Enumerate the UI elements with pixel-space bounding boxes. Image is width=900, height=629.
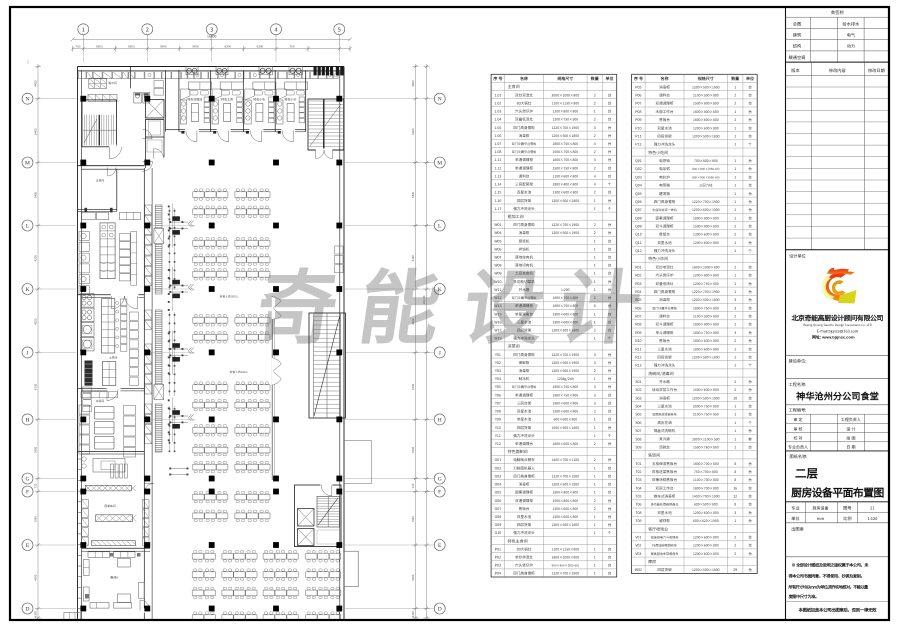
svg-text:双门冷藏平台雪柜: 双门冷藏平台雪柜 bbox=[512, 141, 537, 146]
svg-text:四层货架: 四层货架 bbox=[657, 354, 672, 360]
svg-text:W07: W07 bbox=[494, 256, 501, 261]
svg-text:1.06: 1.06 bbox=[494, 134, 501, 139]
svg-text:www.bjqnsc.com: www.bjqnsc.com bbox=[821, 335, 855, 340]
svg-text:1: 1 bbox=[594, 466, 596, 471]
svg-text:2: 2 bbox=[734, 536, 736, 541]
svg-text:台: 台 bbox=[748, 379, 752, 385]
svg-text:1: 1 bbox=[734, 519, 736, 524]
svg-text:单通调理柜: 单通调理柜 bbox=[515, 392, 533, 398]
svg-text:W05: W05 bbox=[494, 239, 501, 244]
svg-text:2: 2 bbox=[734, 388, 736, 393]
svg-text:Y08: Y08 bbox=[495, 410, 501, 415]
svg-text:台: 台 bbox=[748, 117, 752, 123]
svg-text:1: 1 bbox=[594, 247, 596, 252]
svg-text:台: 台 bbox=[748, 494, 752, 500]
svg-text:修改内容: 修改内容 bbox=[829, 68, 847, 74]
svg-text:二层: 二层 bbox=[795, 466, 818, 482]
svg-text:2100×750×950: 2100×750×950 bbox=[693, 412, 719, 417]
svg-text:台: 台 bbox=[608, 165, 612, 171]
svg-text:五格保温售饭台: 五格保温售饭台 bbox=[652, 461, 678, 467]
svg-text:1800×800×800: 1800×800×800 bbox=[693, 109, 719, 114]
svg-text:T05: T05 bbox=[635, 495, 641, 500]
svg-text:双通调理柜: 双通调理柜 bbox=[515, 498, 533, 504]
svg-text:1.11: 1.11 bbox=[494, 158, 501, 163]
svg-text:P03: P03 bbox=[495, 564, 501, 569]
svg-text:R11: R11 bbox=[635, 347, 641, 352]
svg-text:台: 台 bbox=[748, 281, 752, 287]
svg-text:Y10: Y10 bbox=[495, 426, 501, 431]
svg-text:面案调理柜: 面案调理柜 bbox=[515, 490, 533, 496]
svg-text:台: 台 bbox=[748, 207, 752, 213]
svg-text:1: 1 bbox=[594, 556, 596, 561]
svg-text:三层台架: 三层台架 bbox=[517, 401, 532, 407]
svg-text:四层货架: 四层货架 bbox=[657, 134, 672, 140]
svg-text:720: 720 bbox=[34, 483, 38, 488]
svg-text:P10: P10 bbox=[635, 126, 641, 131]
svg-text:双斗调理柜: 双斗调理柜 bbox=[656, 224, 674, 230]
svg-text:8: 8 bbox=[734, 503, 736, 508]
svg-text:Y11: Y11 bbox=[495, 434, 501, 439]
svg-text:1: 1 bbox=[734, 143, 736, 148]
svg-text:1220×700×1900: 1220×700×1900 bbox=[692, 199, 720, 204]
svg-text:专业: 专业 bbox=[791, 506, 799, 512]
svg-text:数量: 数量 bbox=[730, 76, 739, 82]
svg-text:1: 1 bbox=[734, 200, 736, 205]
svg-text:1800×700×800: 1800×700×800 bbox=[693, 485, 719, 490]
svg-text:1220×700×1900: 1220×700×1900 bbox=[552, 473, 580, 478]
svg-text:1200×500×1900: 1200×500×1900 bbox=[692, 395, 720, 400]
svg-text:刀削面机器人: 刀削面机器人 bbox=[513, 465, 535, 471]
svg-text:工程编号:: 工程编号: bbox=[789, 408, 807, 414]
svg-text:三星水池: 三星水池 bbox=[657, 404, 672, 410]
svg-text:3: 3 bbox=[594, 393, 596, 398]
svg-text:台: 台 bbox=[608, 546, 612, 552]
svg-text:3: 3 bbox=[594, 385, 596, 390]
svg-text:2: 2 bbox=[734, 315, 736, 320]
svg-text:台: 台 bbox=[608, 173, 612, 179]
svg-text:5400: 5400 bbox=[411, 191, 415, 198]
svg-text:双星水池: 双星水池 bbox=[517, 190, 532, 196]
svg-text:售饭台: 售饭台 bbox=[519, 506, 530, 512]
svg-text:1100×1150×800: 1100×1150×800 bbox=[552, 101, 580, 106]
svg-text:1: 1 bbox=[594, 110, 596, 115]
svg-text:台: 台 bbox=[608, 465, 612, 471]
svg-text:4200: 4200 bbox=[34, 318, 38, 325]
svg-text:台: 台 bbox=[608, 255, 612, 261]
svg-text:1800×750×800: 1800×750×800 bbox=[552, 157, 578, 162]
svg-text:台: 台 bbox=[748, 551, 752, 557]
svg-text:双炒双温灶: 双炒双温灶 bbox=[515, 92, 533, 98]
svg-text:序 号: 序 号 bbox=[634, 76, 643, 82]
svg-text:1400×700×1100: 1400×700×1100 bbox=[552, 457, 580, 462]
svg-text:2: 2 bbox=[146, 25, 149, 33]
svg-text:1800×800×800: 1800×800×800 bbox=[693, 215, 719, 220]
svg-text:1: 1 bbox=[734, 85, 736, 90]
svg-text:1: 1 bbox=[594, 272, 596, 277]
svg-text:落地绞肉机: 落地绞肉机 bbox=[515, 255, 533, 261]
svg-text:土豆去皮机: 土豆去皮机 bbox=[515, 271, 533, 277]
svg-text:售饭台: 售饭台 bbox=[659, 232, 670, 238]
svg-text:双星水池: 双星水池 bbox=[657, 510, 672, 516]
svg-text:售饭台: 售饭台 bbox=[659, 117, 670, 123]
svg-text:R07: R07 bbox=[635, 315, 641, 320]
svg-text:1.04: 1.04 bbox=[494, 118, 501, 123]
svg-text:留样柜: 留样柜 bbox=[659, 518, 670, 524]
svg-text:1220×700×1900: 1220×700×1900 bbox=[552, 352, 580, 357]
svg-text:揭盖式洗碗机: 揭盖式洗碗机 bbox=[654, 428, 676, 434]
svg-text:台: 台 bbox=[608, 263, 612, 269]
svg-text:台: 台 bbox=[748, 240, 752, 246]
svg-text:1: 1 bbox=[594, 256, 596, 261]
svg-text:台: 台 bbox=[748, 404, 752, 410]
svg-text:台: 台 bbox=[608, 279, 612, 285]
svg-text:台: 台 bbox=[608, 498, 612, 504]
svg-text:1: 1 bbox=[734, 184, 736, 189]
svg-text:台: 台 bbox=[608, 473, 612, 479]
svg-text:1200×750×500: 1200×750×500 bbox=[693, 281, 719, 286]
svg-text:六头煲仔炉: 六头煲仔炉 bbox=[515, 563, 533, 569]
svg-text:消毒柜: 消毒柜 bbox=[659, 395, 670, 401]
svg-text:四层货架: 四层货架 bbox=[517, 522, 532, 528]
svg-text:1: 1 bbox=[734, 364, 736, 369]
svg-text:活动双层工作台: 活动双层工作台 bbox=[652, 387, 678, 393]
svg-text:强力冲洗龙头: 强力冲洗龙头 bbox=[513, 336, 535, 342]
svg-text:1800×600×800: 1800×600×800 bbox=[693, 346, 719, 351]
svg-text:调料台: 调料台 bbox=[659, 93, 670, 99]
svg-text:台: 台 bbox=[608, 157, 612, 163]
svg-text:台: 台 bbox=[608, 514, 612, 520]
svg-text:720: 720 bbox=[411, 483, 415, 488]
svg-text:台: 台 bbox=[748, 289, 752, 295]
svg-text:台: 台 bbox=[608, 287, 612, 293]
svg-text:S05: S05 bbox=[635, 413, 641, 418]
svg-text:2: 2 bbox=[734, 265, 736, 270]
svg-text:1300×600×800: 1300×600×800 bbox=[552, 506, 578, 511]
svg-text:1200×500×1800: 1200×500×1800 bbox=[552, 133, 580, 138]
svg-text:修改日期: 修改日期 bbox=[868, 68, 885, 74]
svg-text:2: 2 bbox=[734, 552, 736, 557]
svg-text:总图: 总图 bbox=[793, 21, 801, 27]
svg-text:台: 台 bbox=[608, 133, 612, 139]
svg-text:6300: 6300 bbox=[224, 44, 231, 48]
svg-text:双格送菜售饭台: 双格送菜售饭台 bbox=[652, 469, 678, 475]
svg-text:2: 2 bbox=[594, 296, 596, 301]
svg-text:4: 4 bbox=[594, 142, 596, 147]
svg-text:单位: 单位 bbox=[791, 516, 799, 522]
svg-text:四门高身雪柜: 四门高身雪柜 bbox=[513, 352, 535, 358]
svg-text:1: 1 bbox=[734, 175, 736, 180]
svg-text:双叠低汤灶: 双叠低汤灶 bbox=[515, 117, 533, 123]
svg-text:双斗调理柜: 双斗调理柜 bbox=[656, 322, 674, 328]
svg-text:强力冲洗龙头: 强力冲洗龙头 bbox=[654, 142, 676, 148]
svg-text:台: 台 bbox=[608, 125, 612, 131]
svg-text:三星水池: 三星水池 bbox=[657, 346, 672, 352]
svg-text:1: 1 bbox=[734, 323, 736, 328]
svg-text:W10: W10 bbox=[494, 280, 501, 285]
svg-text:1: 1 bbox=[734, 405, 736, 410]
svg-text:S03: S03 bbox=[635, 396, 641, 401]
svg-text:900×800×(950-60): 900×800×(950-60) bbox=[552, 564, 579, 568]
svg-text:O07: O07 bbox=[495, 507, 502, 512]
svg-text:单通调理柜: 单通调理柜 bbox=[515, 157, 533, 163]
svg-text:Q09: Q09 bbox=[635, 225, 642, 230]
svg-text:1100×500×800: 1100×500×800 bbox=[693, 314, 719, 319]
svg-text:网址:: 网址: bbox=[812, 335, 821, 341]
svg-text:制冰机: 制冰机 bbox=[519, 376, 530, 382]
svg-text:101.00: 101.00 bbox=[422, 295, 426, 304]
svg-text:能: 能 bbox=[352, 244, 448, 359]
svg-text:双层工作台: 双层工作台 bbox=[656, 485, 674, 491]
svg-text:建设单位:: 建设单位: bbox=[789, 359, 807, 365]
svg-text:台: 台 bbox=[608, 109, 612, 115]
svg-text:保鲜柜: 保鲜柜 bbox=[519, 360, 530, 366]
svg-text:1500×600×800: 1500×600×800 bbox=[693, 387, 719, 392]
svg-text:设 计: 设 计 bbox=[846, 426, 855, 432]
svg-text:台: 台 bbox=[748, 502, 752, 508]
svg-text:多功能托盘碗筷备台: 多功能托盘碗筷备台 bbox=[651, 502, 679, 507]
svg-text:规格尺寸: 规格尺寸 bbox=[698, 76, 714, 82]
svg-text:台: 台 bbox=[608, 482, 612, 488]
svg-text:面点间: 面点间 bbox=[108, 81, 117, 85]
svg-text:台: 台 bbox=[748, 166, 752, 172]
svg-text:台: 台 bbox=[608, 441, 612, 447]
svg-text:1200×750×500: 1200×750×500 bbox=[552, 117, 578, 122]
svg-text:5400: 5400 bbox=[34, 191, 38, 198]
svg-text:1200×600×800: 1200×600×800 bbox=[552, 190, 578, 195]
svg-text:得本公司书面同意，不得使用、抄袭及复制。: 得本公司书面同意，不得使用、抄袭及复制。 bbox=[788, 574, 865, 580]
svg-text:S01: S01 bbox=[635, 380, 641, 385]
svg-text:6400: 6400 bbox=[34, 128, 38, 135]
svg-text:校 对: 校 对 bbox=[793, 436, 802, 442]
svg-text:给水排水: 给水排水 bbox=[843, 21, 861, 27]
svg-text:电蒸箱: 电蒸箱 bbox=[659, 183, 670, 189]
svg-text:个: 个 bbox=[608, 206, 612, 212]
svg-text:动力: 动力 bbox=[847, 44, 855, 50]
svg-text:Y04: Y04 bbox=[495, 377, 501, 382]
svg-text:1500×760×800: 1500×760×800 bbox=[693, 445, 719, 450]
svg-text:29: 29 bbox=[733, 568, 737, 573]
svg-text:1: 1 bbox=[594, 280, 596, 285]
svg-text:R09: R09 bbox=[635, 331, 641, 336]
svg-text:Y06: Y06 bbox=[495, 393, 501, 398]
svg-text:台: 台 bbox=[748, 543, 752, 549]
svg-text:1.15: 1.15 bbox=[494, 191, 501, 196]
svg-text:6700: 6700 bbox=[34, 383, 38, 390]
svg-text:工程负责人: 工程负责人 bbox=[841, 417, 861, 423]
svg-text:厨房设备平面布置图: 厨房设备平面布置图 bbox=[791, 485, 884, 501]
svg-text:1200×600×800: 1200×600×800 bbox=[693, 510, 719, 515]
svg-text:1: 1 bbox=[594, 426, 596, 431]
svg-text:Q07: Q07 bbox=[635, 208, 642, 213]
svg-text:台: 台 bbox=[608, 376, 612, 382]
svg-text:本图纸加盖本公司出图章后，否则一律无效: 本图纸加盖本公司出图章后，否则一律无效 bbox=[798, 608, 878, 614]
svg-text:1800×1000×800: 1800×1000×800 bbox=[552, 555, 580, 560]
svg-text:D: D bbox=[26, 607, 30, 613]
svg-text:台: 台 bbox=[608, 198, 612, 204]
svg-text:图纸名称:: 图纸名称: bbox=[790, 454, 808, 460]
svg-text:四门高身雪柜: 四门高身雪柜 bbox=[654, 289, 676, 295]
svg-text:1: 1 bbox=[594, 320, 596, 325]
svg-text:1: 1 bbox=[734, 347, 736, 352]
svg-text:800×900×(950-60): 800×900×(950-60) bbox=[692, 175, 719, 179]
svg-text:2: 2 bbox=[594, 442, 596, 447]
svg-text:单位: 单位 bbox=[746, 76, 754, 82]
svg-text:P01: P01 bbox=[495, 547, 501, 552]
svg-text:蒸汽罩: 蒸汽罩 bbox=[659, 436, 670, 442]
svg-text:1: 1 bbox=[82, 25, 85, 33]
svg-text:双星水池: 双星水池 bbox=[657, 240, 672, 246]
svg-text:特色小炒间: 特色小炒间 bbox=[648, 256, 668, 262]
svg-text:台: 台 bbox=[748, 158, 752, 164]
svg-text:Q01: Q01 bbox=[635, 159, 642, 164]
svg-text:F: F bbox=[26, 490, 29, 496]
svg-text:台: 台 bbox=[748, 354, 752, 360]
svg-text:建筑: 建筑 bbox=[793, 33, 802, 39]
svg-text:1: 1 bbox=[734, 241, 736, 246]
svg-text:出图章: 出图章 bbox=[791, 527, 804, 533]
svg-text:1200×500×1800: 1200×500×1800 bbox=[692, 134, 720, 139]
svg-text:台: 台 bbox=[608, 101, 612, 107]
svg-text:Beijing Qineng Gaochu Design C: Beijing Qineng Gaochu Design Consultants… bbox=[803, 323, 871, 327]
svg-text:台: 台 bbox=[748, 461, 752, 467]
svg-text:W09: W09 bbox=[494, 272, 501, 277]
svg-text:2: 2 bbox=[734, 233, 736, 238]
svg-text:1: 1 bbox=[594, 418, 596, 423]
svg-text:台: 台 bbox=[608, 360, 612, 366]
svg-text:台: 台 bbox=[608, 311, 612, 317]
svg-text:单星水池: 单星水池 bbox=[517, 417, 532, 423]
svg-text:台: 台 bbox=[748, 273, 752, 279]
svg-text:R10: R10 bbox=[635, 339, 641, 344]
svg-text:名称: 名称 bbox=[520, 76, 528, 82]
svg-text:粗加工间: 粗加工间 bbox=[508, 214, 524, 220]
svg-text:1800×800×800: 1800×800×800 bbox=[693, 322, 719, 327]
svg-text:P08: P08 bbox=[635, 110, 641, 115]
svg-text:Y03: Y03 bbox=[495, 369, 501, 374]
svg-text:双门冷藏平台雪柜: 双门冷藏平台雪柜 bbox=[512, 384, 537, 389]
svg-text:托盘加碗筷回收车: 托盘加碗筷回收车 bbox=[652, 543, 677, 548]
svg-text:1500×750×800: 1500×750×800 bbox=[552, 165, 578, 170]
svg-text:1300×600×800: 1300×600×800 bbox=[693, 232, 719, 237]
svg-text:面案调理柜: 面案调理柜 bbox=[656, 215, 674, 221]
svg-text:600×600×800: 600×600×800 bbox=[553, 417, 577, 422]
svg-text:4300: 4300 bbox=[411, 574, 415, 581]
svg-text:强力冲洗龙头: 强力冲洗龙头 bbox=[513, 433, 535, 439]
svg-text:W04: W04 bbox=[494, 231, 501, 236]
svg-text:2: 2 bbox=[594, 369, 596, 374]
svg-text:mm: mm bbox=[817, 516, 825, 522]
svg-text:1.08: 1.08 bbox=[494, 150, 501, 155]
svg-text:Q02: Q02 bbox=[635, 167, 642, 172]
svg-text:80大锅灶: 80大锅灶 bbox=[517, 101, 532, 107]
svg-text:1800×750×800: 1800×750×800 bbox=[552, 303, 578, 308]
svg-text:5400: 5400 bbox=[160, 44, 167, 48]
svg-text:台: 台 bbox=[748, 109, 752, 115]
svg-text:T03: T03 bbox=[635, 478, 641, 483]
svg-text:W19: W19 bbox=[494, 337, 501, 342]
svg-text:台: 台 bbox=[608, 319, 612, 325]
svg-text:Q12: Q12 bbox=[635, 249, 642, 254]
svg-text:台: 台 bbox=[608, 352, 612, 358]
svg-text:Y12: Y12 bbox=[495, 442, 501, 447]
svg-text:就餐人数380人: 就餐人数380人 bbox=[220, 295, 239, 299]
svg-text:1200×500×1900: 1200×500×1900 bbox=[552, 230, 580, 235]
svg-text:O05: O05 bbox=[495, 491, 502, 496]
svg-text:Y02: Y02 bbox=[495, 361, 501, 366]
svg-text:3: 3 bbox=[594, 361, 596, 366]
svg-text:1.14: 1.14 bbox=[494, 183, 501, 188]
svg-text:三层六柱: 三层六柱 bbox=[699, 183, 713, 188]
svg-text:O09: O09 bbox=[495, 523, 502, 528]
svg-text:台: 台 bbox=[748, 134, 752, 140]
svg-text:台: 台 bbox=[608, 490, 612, 496]
svg-text:台: 台 bbox=[748, 93, 752, 99]
svg-text:M: M bbox=[25, 161, 30, 167]
svg-text:6300: 6300 bbox=[128, 44, 135, 48]
svg-text:2: 2 bbox=[594, 231, 596, 236]
svg-text:调料台: 调料台 bbox=[659, 314, 670, 320]
svg-text:2: 2 bbox=[594, 134, 596, 139]
svg-text:6300: 6300 bbox=[257, 44, 264, 48]
svg-text:W17: W17 bbox=[494, 329, 501, 334]
svg-text:W06: W06 bbox=[494, 247, 501, 252]
svg-text:1.01: 1.01 bbox=[494, 93, 501, 98]
svg-text:6300: 6300 bbox=[411, 611, 415, 618]
svg-text:强力冲洗龙头: 强力冲洗龙头 bbox=[513, 530, 535, 536]
svg-text:Y01: Y01 bbox=[495, 353, 501, 358]
svg-text:1200×600×800: 1200×600×800 bbox=[693, 535, 719, 540]
svg-text:单星洗鱼台: 单星洗鱼台 bbox=[515, 311, 533, 317]
svg-text:消毒柜: 消毒柜 bbox=[519, 368, 530, 374]
svg-text:1800×750×800: 1800×750×800 bbox=[552, 392, 578, 397]
svg-text:4200: 4200 bbox=[411, 255, 415, 262]
svg-text:拌馅机: 拌馅机 bbox=[519, 246, 530, 252]
svg-text:台: 台 bbox=[748, 305, 752, 311]
svg-text:台: 台 bbox=[608, 230, 612, 236]
svg-text:S09: S09 bbox=[635, 446, 641, 451]
svg-text:开水器: 开水器 bbox=[659, 379, 670, 385]
svg-text:凉菜间: 凉菜间 bbox=[96, 399, 105, 403]
svg-text:1: 1 bbox=[734, 421, 736, 426]
svg-text:Q08: Q08 bbox=[635, 216, 642, 221]
svg-text:台: 台 bbox=[608, 563, 612, 569]
svg-text:强力冲洗龙头: 强力冲洗龙头 bbox=[513, 206, 535, 212]
svg-text:1: 1 bbox=[734, 208, 736, 213]
svg-text:3: 3 bbox=[734, 511, 736, 516]
svg-text:1220×700×1900: 1220×700×1900 bbox=[552, 222, 580, 227]
svg-text:10: 10 bbox=[733, 396, 737, 401]
svg-text:8: 8 bbox=[734, 470, 736, 475]
svg-text:1: 1 bbox=[734, 167, 736, 172]
svg-text:台: 台 bbox=[748, 232, 752, 238]
svg-text:T06: T06 bbox=[635, 503, 641, 508]
svg-text:台: 台 bbox=[748, 174, 752, 180]
svg-text:1200×500×1900: 1200×500×1900 bbox=[552, 368, 580, 373]
svg-text:1200×600×800: 1200×600×800 bbox=[552, 409, 578, 414]
svg-text:3: 3 bbox=[594, 402, 596, 407]
svg-text:四门高身雪柜: 四门高身雪柜 bbox=[513, 125, 535, 131]
svg-text:21: 21 bbox=[870, 506, 874, 512]
svg-text:7040: 7040 bbox=[33, 516, 37, 523]
svg-text:2: 2 bbox=[594, 102, 596, 107]
svg-text:台: 台 bbox=[748, 346, 752, 352]
svg-text:H: H bbox=[26, 417, 30, 423]
svg-text:全自动豆浆一体机: 全自动豆浆一体机 bbox=[652, 207, 678, 212]
svg-text:1: 1 bbox=[734, 192, 736, 197]
svg-text:消毒柜: 消毒柜 bbox=[659, 297, 670, 303]
svg-text:W02: W02 bbox=[635, 568, 642, 573]
svg-text:2: 2 bbox=[594, 329, 596, 334]
